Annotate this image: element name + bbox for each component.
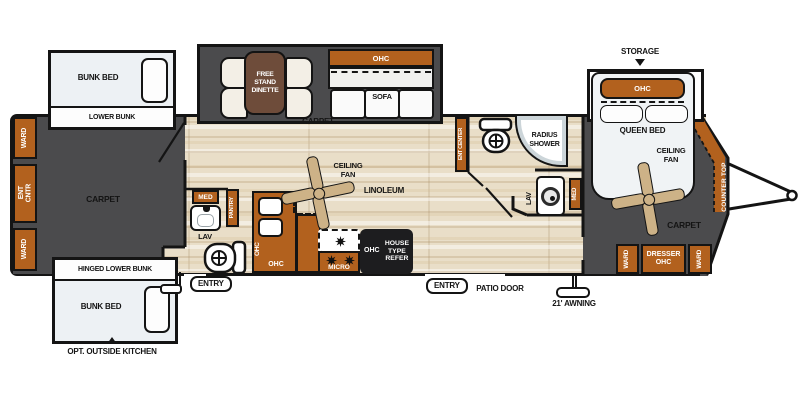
patio-door-label: PATIO DOOR (470, 284, 530, 294)
awning-stem (572, 274, 577, 288)
outside-kitchen-arrow-icon (107, 337, 117, 344)
refer-label: HOUSE TYPE REFER (385, 240, 409, 263)
free-stand-dinette-label: FREE STAND DINETTE (252, 71, 279, 94)
storage-arrow-icon (635, 59, 645, 66)
floorplan: WARD ENT CNTR WARD CARPET BUNK BED LOWER… (0, 0, 800, 400)
lounge-floor-label: CARPET (63, 194, 143, 204)
ward-cabinet-rear-bottom: WARD (13, 228, 37, 271)
med-cabinet-rear: MED (192, 190, 219, 204)
lounge-carpet (13, 117, 185, 247)
pillow (645, 105, 688, 123)
bedroom-ceiling-fan-label: CEILING FAN (645, 146, 697, 164)
dinette-chair (285, 87, 313, 119)
ward-cabinet-rear-top: WARD (13, 117, 37, 159)
radius-shower-label: RADIUS SHOWER (529, 132, 559, 149)
ward-cabinet-bedroom-right: WARD (688, 244, 712, 274)
burner-icon (344, 255, 355, 266)
queen-bed-label: QUEEN BED (593, 126, 692, 136)
ward-cabinet-bedroom-left: WARD (616, 244, 639, 274)
round-lav-sink-icon (541, 187, 560, 206)
upper-bunk-slideout: BUNK BED LOWER BUNK (48, 50, 176, 130)
ward-label: WARD (21, 128, 28, 148)
med-label: MED (198, 194, 212, 201)
sofa-label: SOFA (357, 92, 407, 101)
counter-top-label-wrap: COUNTER TOP (713, 155, 725, 219)
hinged-lower-bunk-band: HINGED LOWER BUNK (55, 260, 175, 281)
drain-dot (550, 196, 555, 201)
lower-bunk-band: LOWER BUNK (51, 106, 173, 127)
refer-ohc-label: OHC (364, 247, 380, 255)
queen-ohc-label: OHC (634, 84, 651, 93)
lower-bunk-slideout: HINGED LOWER BUNK BUNK BED (52, 257, 178, 344)
lower-bunk-bed-label: BUNK BED (59, 302, 143, 312)
burner-icon (326, 255, 337, 266)
faucet-icon (203, 206, 210, 212)
linoleum-label: LINOLEUM (356, 186, 412, 196)
sofa-ohc-cabinet: OHC (328, 49, 434, 67)
mid-lav-label: LAV (526, 186, 536, 212)
kitchen-ohc-front-label: OHC (262, 261, 290, 269)
hinged-lower-bunk-label: HINGED LOWER BUNK (78, 266, 152, 273)
burner-icon (335, 236, 346, 247)
med-cabinet-mid: MED (569, 178, 582, 210)
dinette-chair (285, 57, 313, 89)
counter-top-label: COUNTER TOP (721, 162, 728, 211)
lower-bunk-label: LOWER BUNK (89, 114, 135, 121)
ent-center-cabinet: ENT CENTER (455, 117, 468, 172)
basin-outline (197, 214, 214, 227)
ent-center-label: ENT CENTER (459, 128, 465, 160)
toilet-icon (203, 240, 247, 276)
awning-label: 21' AWNING (542, 299, 606, 309)
toilet-icon (478, 117, 514, 155)
lav-pedestal (536, 176, 565, 216)
step-tread (160, 284, 182, 294)
upper-bunk-bed-label: BUNK BED (55, 73, 141, 83)
pantry-cabinet: PANTRY (226, 189, 239, 227)
outside-kitchen-label: OPT. OUTSIDE KITCHEN (42, 347, 182, 357)
kitchen-ceiling-fan-label: CEILING FAN (326, 161, 370, 179)
ward-label: WARD (21, 239, 28, 259)
sofa-ohc-label: OHC (373, 54, 390, 63)
bath-sink-icon (190, 205, 221, 231)
pantry-label: PANTRY (229, 197, 235, 218)
micro-range-cabinet: MICRO (318, 251, 360, 273)
awning-roller (556, 287, 590, 298)
hitch-coupler-icon (788, 191, 797, 200)
dresser-cabinet: DRESSER OHC (641, 244, 686, 274)
entry-main-label: ENTRY (426, 278, 468, 294)
dinette-carpet-label: CARPET (292, 117, 344, 127)
hitch-icon (729, 164, 791, 209)
ward-label: WARD (624, 250, 631, 269)
rear-lav-label: LAV (188, 232, 222, 241)
range-cooktop-icon (318, 229, 360, 253)
pillow (141, 58, 168, 103)
kitchen-sink-icon (258, 197, 283, 216)
kitchen-sink-icon (258, 218, 283, 237)
queen-ohc-cabinet: OHC (600, 78, 685, 99)
dinette-sofa-slideout: FREE STAND DINETTE OHC SOFA (197, 44, 443, 124)
kitchen-ohc-side-label: OHC (255, 237, 262, 261)
ent-cntr-label: ENT CNTR (18, 184, 33, 202)
med-label: MED (572, 188, 578, 200)
ent-cntr-cabinet: ENT CNTR (13, 164, 37, 223)
bedroom-carpet-label: CARPET (656, 220, 712, 230)
dinette-table: FREE STAND DINETTE (244, 51, 286, 115)
bed-dashed-line (601, 101, 684, 103)
pillow (600, 105, 643, 123)
dresser-label: DRESSER OHC (647, 251, 681, 267)
storage-label: STORAGE (612, 47, 668, 57)
entry-rear-label: ENTRY (190, 276, 232, 292)
ward-label: WARD (697, 250, 704, 269)
sofa-dashed-line (331, 71, 431, 73)
refrigerator: OHC HOUSE TYPE REFER (360, 229, 413, 274)
